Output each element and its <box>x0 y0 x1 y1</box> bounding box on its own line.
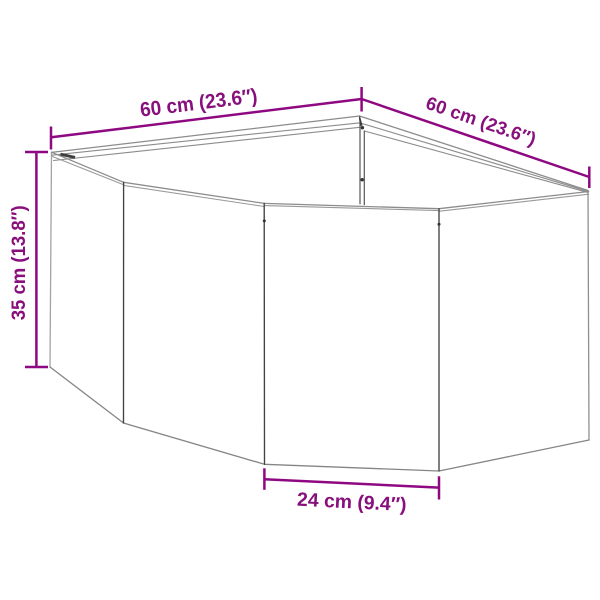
svg-text:35 cm (13.8″): 35 cm (13.8″) <box>8 205 30 320</box>
